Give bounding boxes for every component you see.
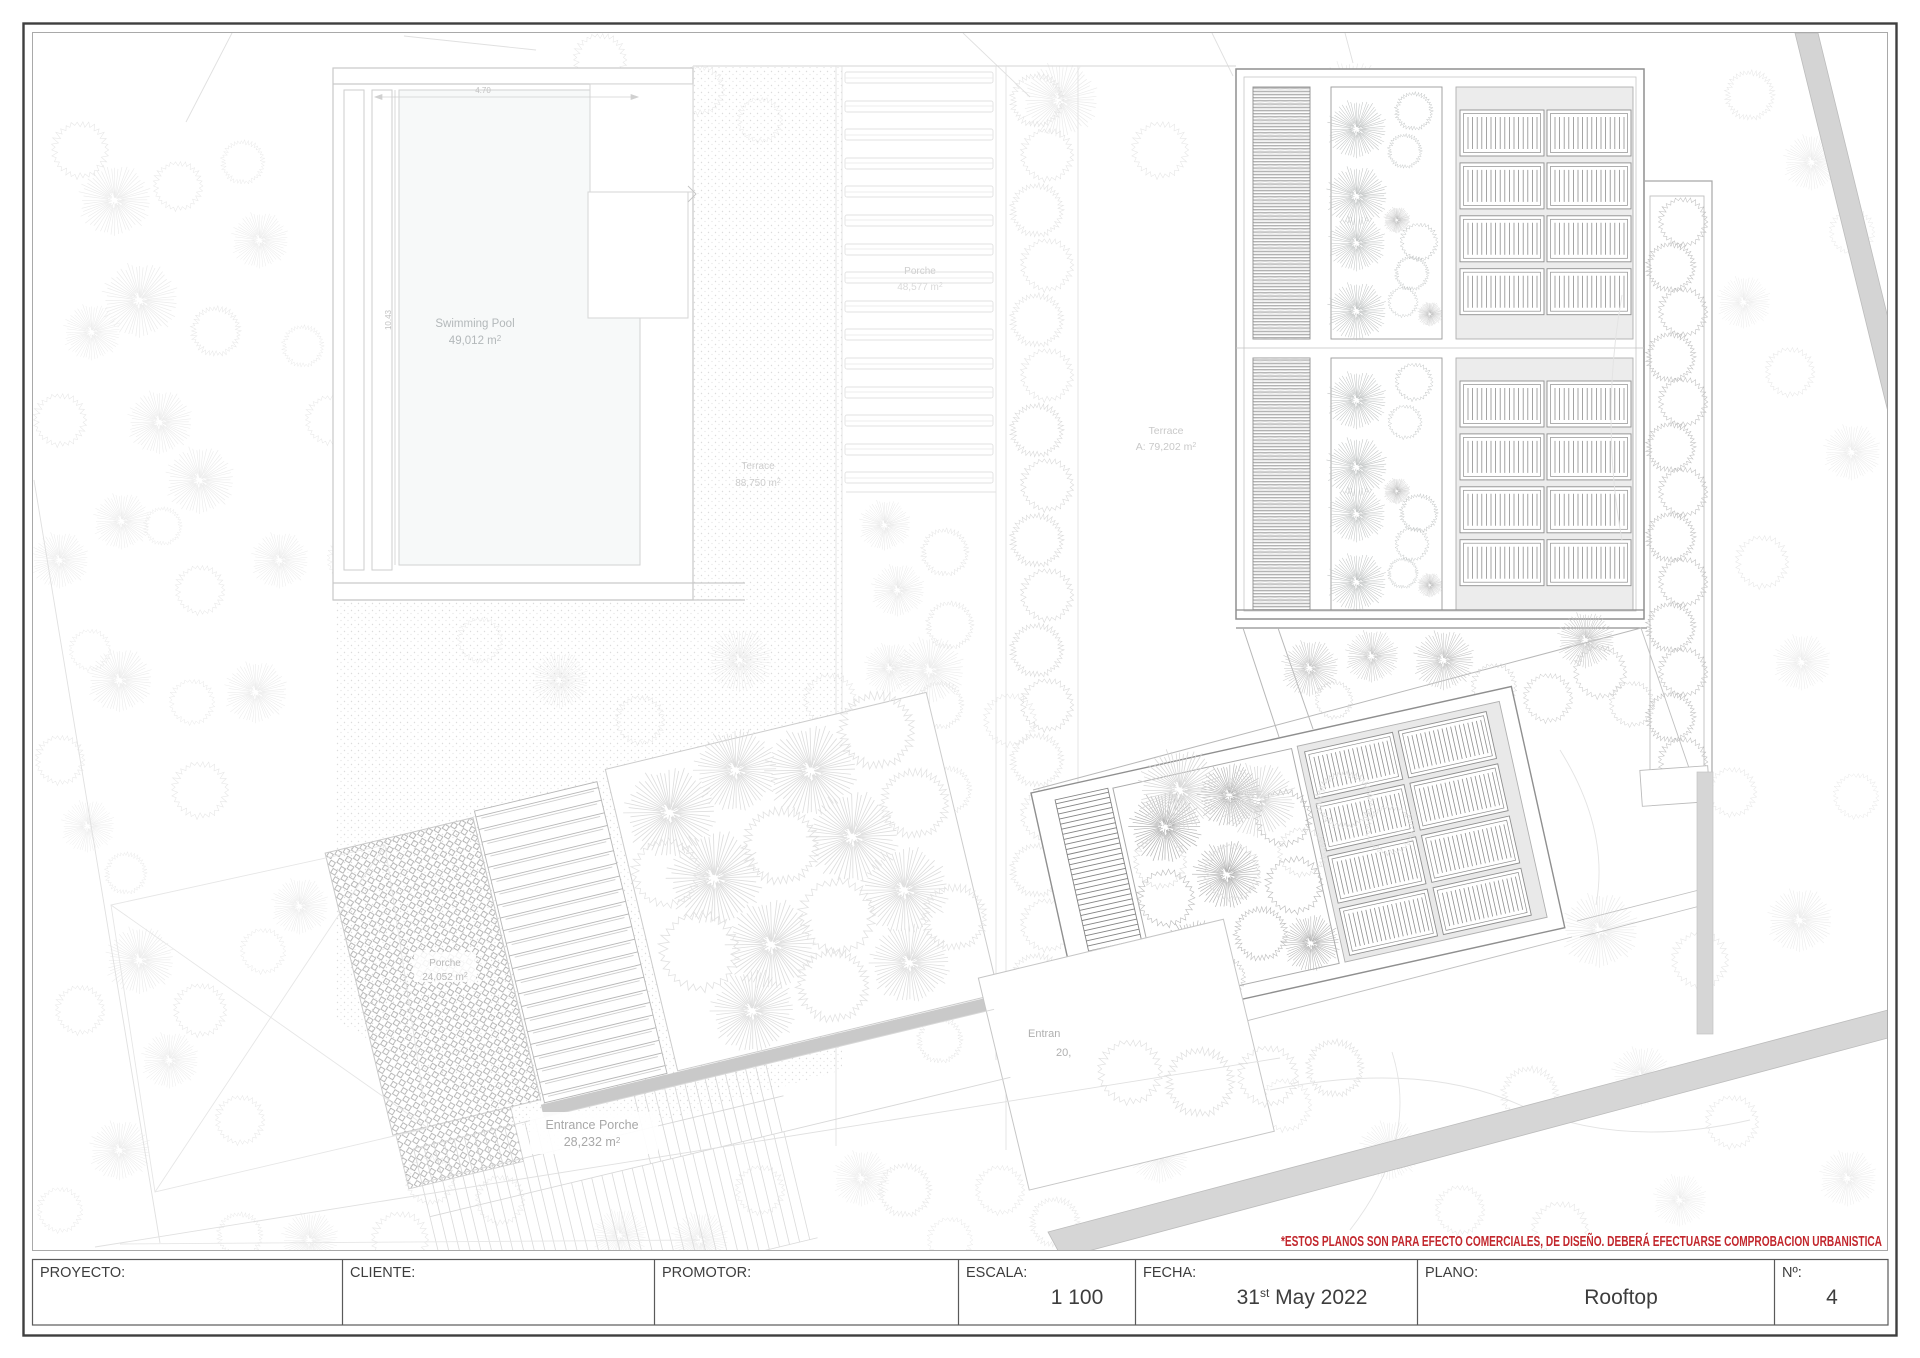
svg-text:Swimming Pool: Swimming Pool bbox=[435, 318, 514, 330]
svg-text:CLIENTE:: CLIENTE: bbox=[350, 1265, 415, 1281]
svg-text:Porche: Porche bbox=[429, 958, 461, 969]
svg-text:FECHA:: FECHA: bbox=[1143, 1265, 1196, 1281]
svg-text:49,012 m2: 49,012 m2 bbox=[449, 334, 502, 347]
svg-text:PROYECTO:: PROYECTO: bbox=[40, 1265, 125, 1281]
svg-text:31st May 2022: 31st May 2022 bbox=[1237, 1286, 1368, 1309]
svg-text:ESCALA:: ESCALA: bbox=[966, 1265, 1027, 1281]
svg-text:24,052 m2: 24,052 m2 bbox=[422, 972, 468, 983]
svg-text:PROMOTOR:: PROMOTOR: bbox=[662, 1265, 751, 1281]
svg-text:1 100: 1 100 bbox=[1051, 1286, 1104, 1309]
svg-text:Nº:: Nº: bbox=[1782, 1265, 1802, 1281]
svg-text:Terrace: Terrace bbox=[1148, 425, 1183, 437]
svg-text:48,577 m2: 48,577 m2 bbox=[897, 282, 943, 293]
svg-text:Entrance Porche: Entrance Porche bbox=[545, 1118, 638, 1132]
svg-text:Rooftop: Rooftop bbox=[1584, 1286, 1658, 1309]
svg-text:Entran: Entran bbox=[1028, 1028, 1060, 1040]
svg-text:10.43: 10.43 bbox=[384, 309, 393, 330]
svg-text:Porche: Porche bbox=[904, 266, 936, 277]
svg-text:A: 79,202 m2: A: 79,202 m2 bbox=[1136, 441, 1197, 453]
svg-text:PLANO:: PLANO: bbox=[1425, 1265, 1478, 1281]
svg-text:4: 4 bbox=[1826, 1286, 1838, 1309]
svg-text:88,750 m2: 88,750 m2 bbox=[735, 478, 781, 489]
svg-text:*ESTOS PLANOS SON PARA EFECTO: *ESTOS PLANOS SON PARA EFECTO COMERCIALE… bbox=[1281, 1232, 1882, 1250]
svg-text:Terrace: Terrace bbox=[741, 461, 775, 472]
svg-text:20,: 20, bbox=[1056, 1047, 1071, 1059]
svg-text:4.70: 4.70 bbox=[475, 86, 491, 95]
svg-text:28,232 m2: 28,232 m2 bbox=[564, 1135, 621, 1149]
